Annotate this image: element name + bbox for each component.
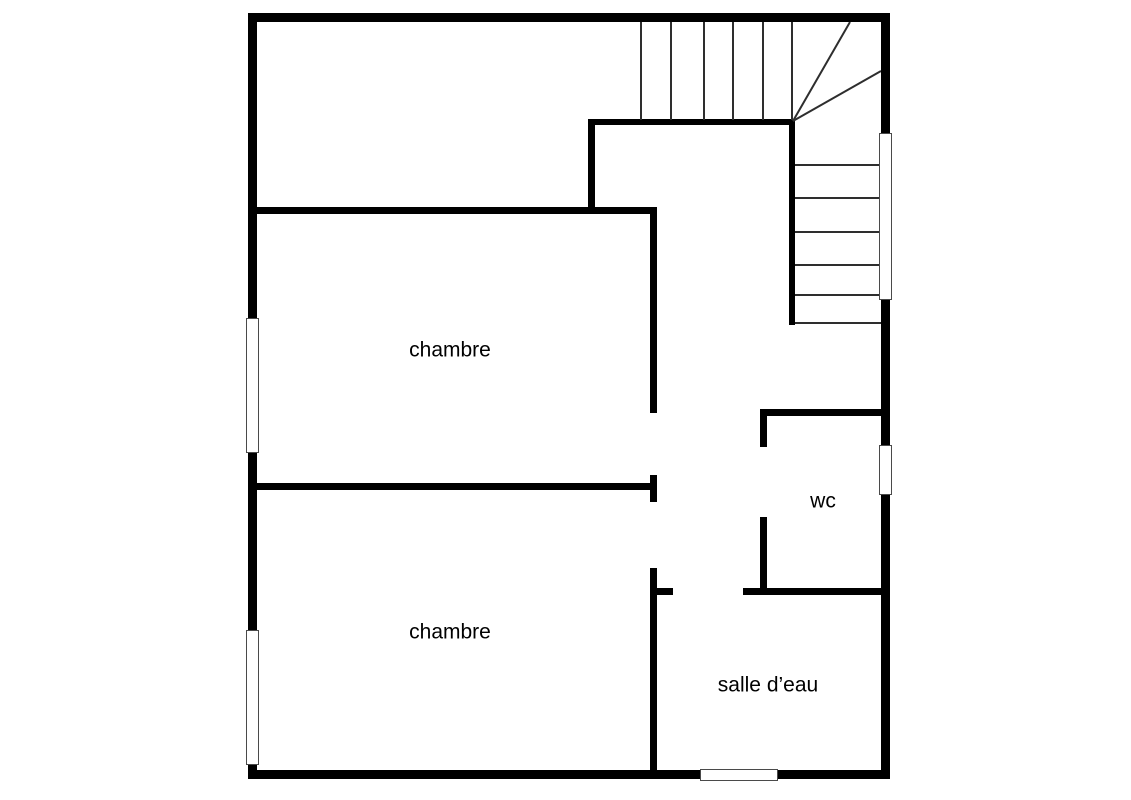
door-jamb-between-chambres bbox=[650, 475, 657, 502]
interior-wall-chambre1-right bbox=[650, 207, 657, 413]
interior-wall-chambre2-right bbox=[650, 568, 657, 779]
door-jamb-salle-deau bbox=[657, 588, 673, 595]
interior-wall-between-chambres bbox=[253, 483, 657, 490]
room-label-salle-deau: salle d’eau bbox=[718, 675, 818, 696]
interior-wall-wc-left-upper bbox=[760, 409, 767, 447]
stair-winder-lines bbox=[0, 0, 1131, 800]
interior-wall-wc-top bbox=[760, 409, 886, 416]
exterior-wall-right bbox=[881, 13, 890, 779]
interior-wall-wc-left-lower bbox=[760, 517, 767, 595]
room-label-chambre-1: chambre bbox=[409, 340, 491, 361]
window-right-wc bbox=[879, 445, 892, 495]
room-label-chambre-2: chambre bbox=[409, 622, 491, 643]
window-bottom-salle-deau bbox=[700, 769, 778, 781]
window-left-chambre1 bbox=[246, 318, 259, 453]
interior-wall-stair-enclosure-left bbox=[588, 122, 595, 214]
floor-plan: chambre chambre wc salle d’eau bbox=[0, 0, 1131, 800]
interior-wall-wc-bottom bbox=[743, 588, 886, 595]
exterior-wall-top bbox=[248, 13, 890, 22]
room-label-wc: wc bbox=[810, 491, 836, 512]
interior-wall-chambre1-top bbox=[253, 207, 657, 214]
exterior-wall-bottom bbox=[248, 770, 890, 779]
window-left-chambre2 bbox=[246, 630, 259, 765]
window-right-staircase bbox=[879, 133, 892, 300]
